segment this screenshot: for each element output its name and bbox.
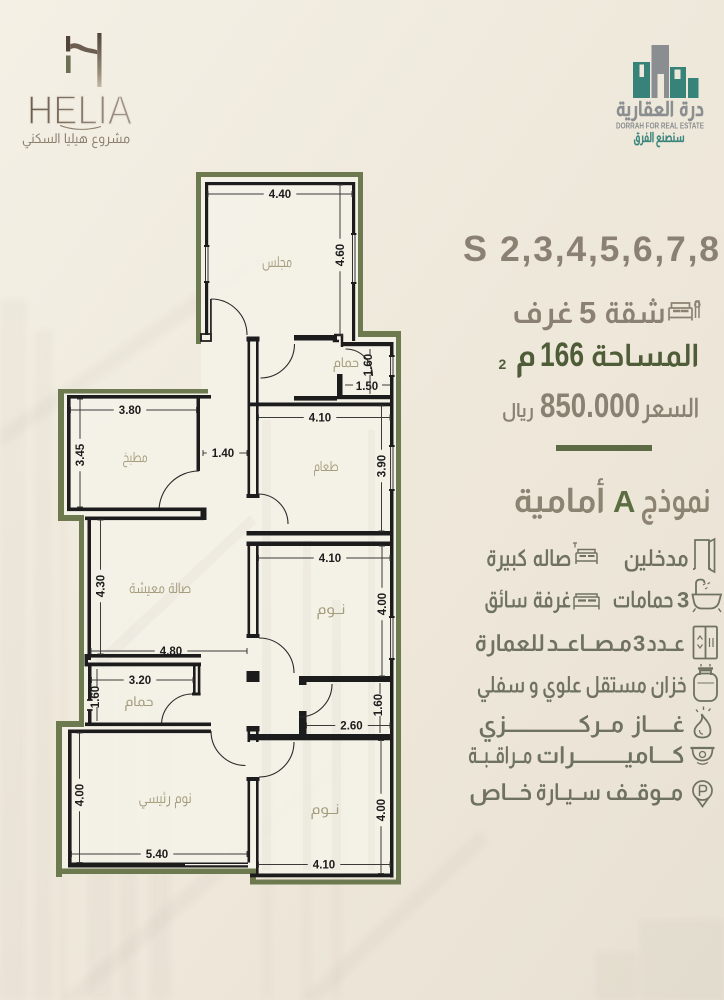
svg-text:3.20: 3.20 — [129, 675, 151, 687]
svg-text:850.000: 850.000 — [540, 387, 640, 425]
svg-text:1.50: 1.50 — [356, 381, 378, 393]
svg-text:HELIA: HELIA — [27, 87, 133, 133]
svg-text:A: A — [613, 484, 635, 519]
svg-text:4.00: 4.00 — [75, 784, 87, 806]
svg-text:1.60: 1.60 — [90, 686, 102, 708]
svg-text:4.40: 4.40 — [269, 189, 291, 201]
svg-text:1.60: 1.60 — [363, 354, 375, 376]
svg-text:3: 3 — [677, 588, 689, 613]
svg-text:4.80: 4.80 — [160, 646, 182, 658]
svg-text:1.60: 1.60 — [373, 694, 385, 716]
svg-text:DORRAH FOR REAL ESTATE: DORRAH FOR REAL ESTATE — [616, 121, 704, 131]
svg-text:2,3,4,5,6,7,8: 2,3,4,5,6,7,8 — [500, 229, 721, 269]
svg-text:4.10: 4.10 — [313, 860, 335, 872]
svg-text:4.00: 4.00 — [377, 593, 389, 615]
svg-text:4.10: 4.10 — [319, 553, 341, 565]
svg-text:5: 5 — [579, 295, 596, 330]
svg-text:4.10: 4.10 — [309, 413, 331, 425]
svg-text:1.40: 1.40 — [212, 448, 234, 460]
svg-text:3.90: 3.90 — [377, 455, 389, 477]
svg-text:S: S — [463, 228, 487, 269]
svg-text:2: 2 — [499, 356, 507, 372]
svg-text:4.00: 4.00 — [376, 799, 388, 821]
svg-text:4.60: 4.60 — [335, 244, 347, 266]
svg-text:3: 3 — [633, 631, 645, 656]
svg-text:3.45: 3.45 — [75, 443, 87, 466]
svg-text:166: 166 — [540, 336, 584, 374]
svg-text:2.60: 2.60 — [340, 721, 362, 733]
svg-text:3.80: 3.80 — [119, 405, 141, 417]
svg-text:4.30: 4.30 — [96, 575, 108, 597]
svg-text:5.40: 5.40 — [146, 849, 168, 861]
